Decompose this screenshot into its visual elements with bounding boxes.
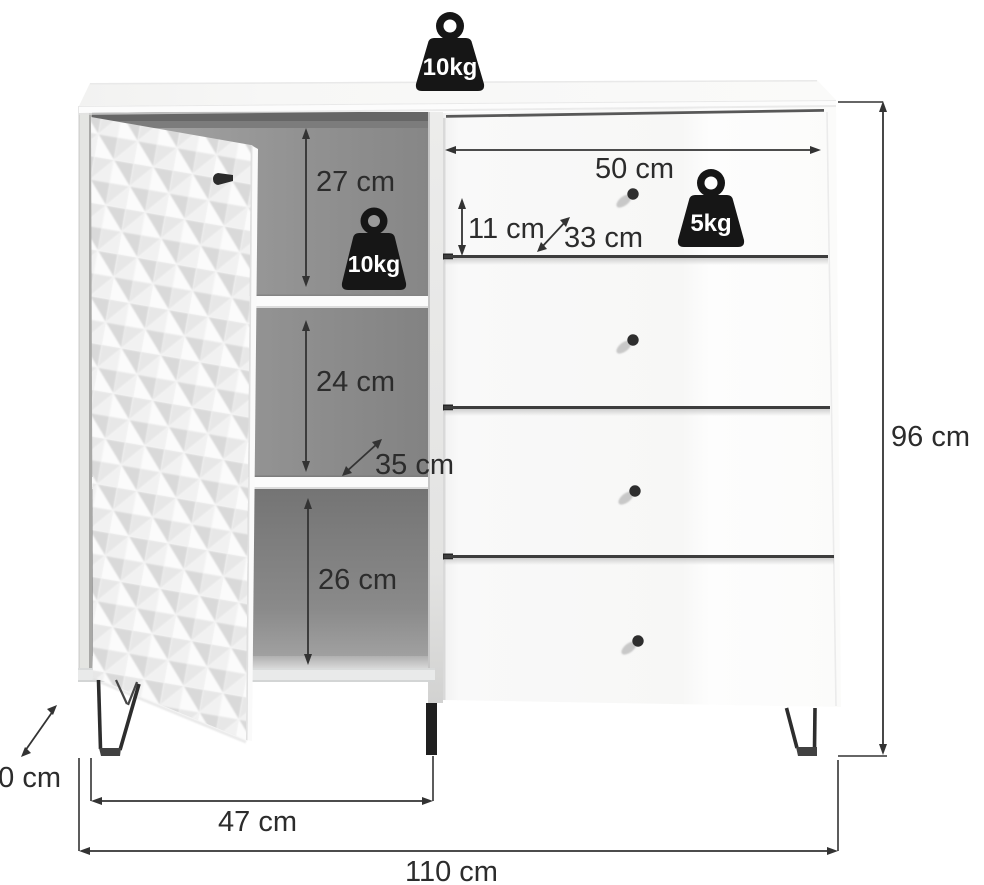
svg-text:11 cm: 11 cm <box>468 213 545 245</box>
svg-text:26 cm: 26 cm <box>318 564 397 596</box>
svg-text:27 cm: 27 cm <box>316 166 395 198</box>
svg-text:47 cm: 47 cm <box>218 806 297 838</box>
svg-text:40 cm: 40 cm <box>0 762 61 794</box>
svg-text:10kg: 10kg <box>423 54 478 81</box>
svg-text:96 cm: 96 cm <box>891 421 970 453</box>
svg-text:110 cm: 110 cm <box>405 856 498 885</box>
svg-text:33 cm: 33 cm <box>564 222 643 254</box>
svg-text:5kg: 5kg <box>690 210 731 237</box>
svg-text:24 cm: 24 cm <box>316 366 395 398</box>
svg-text:50 cm: 50 cm <box>595 153 674 185</box>
svg-text:35 cm: 35 cm <box>375 449 454 481</box>
svg-text:10kg: 10kg <box>348 251 400 277</box>
